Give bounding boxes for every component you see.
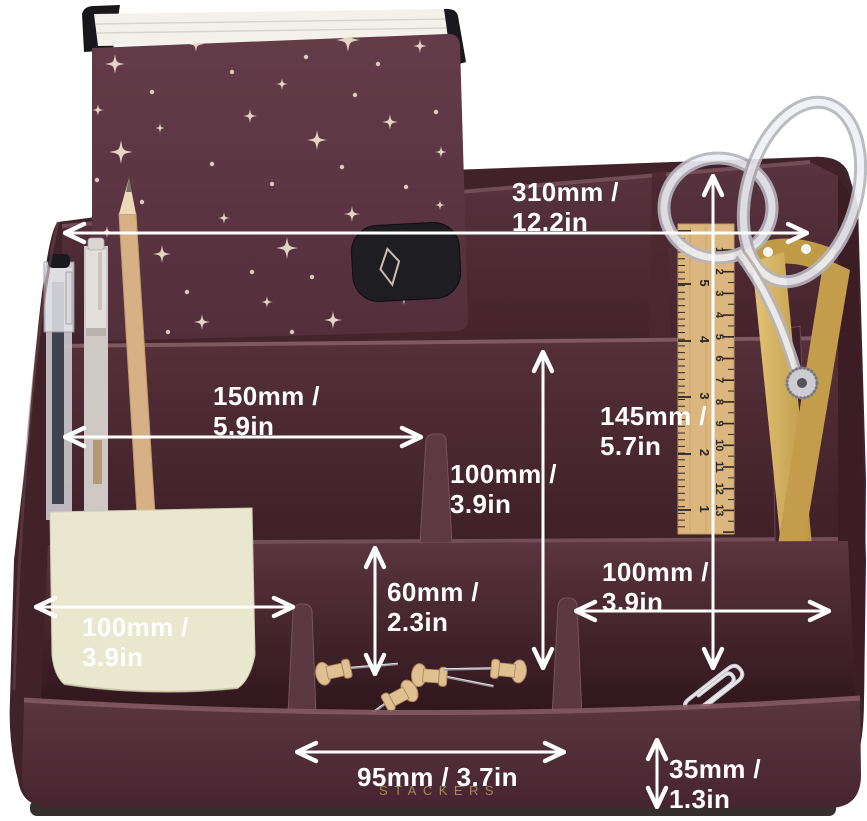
dot-decoration (140, 200, 144, 204)
ruler-cm-number: 7 (713, 377, 725, 383)
dot-decoration (210, 162, 214, 166)
dot-decoration (250, 270, 254, 274)
ruler-cm-number: 13 (713, 504, 725, 516)
dot-decoration (290, 330, 294, 334)
ruler-cm-number: 6 (713, 355, 725, 361)
dimension-label-left-compartment-width: 150mm / 5.9in (213, 381, 320, 441)
ruler-inch-number: 4 (697, 336, 712, 344)
ruler-cm-number: 12 (713, 483, 725, 495)
ruler-inch-number: 1 (697, 505, 712, 512)
dimension-label-base-height: 35mm / 1.3in (669, 754, 761, 814)
wooden-ruler: 5432112345678910111213 (678, 224, 734, 534)
dot-decoration (340, 165, 344, 169)
dot-decoration (270, 182, 274, 186)
dot-decoration (95, 178, 99, 182)
product-photo: 5432112345678910111213 (0, 0, 867, 821)
ruler-cm-number: 10 (713, 439, 725, 451)
ruler-inch-number: 5 (697, 279, 712, 286)
front-divider-left (288, 604, 316, 714)
ruler-inch-number: 3 (697, 392, 712, 399)
dot-decoration (166, 330, 170, 334)
ruler-cm-number: 9 (713, 421, 725, 427)
scissors-hole (763, 247, 773, 257)
dimension-label-overall-width: 310mm / 12.2in (512, 177, 619, 237)
ruler-cm-number: 2 (713, 269, 725, 275)
ruler-cm-number: 11 (713, 461, 725, 473)
dot-decoration (353, 93, 357, 97)
white-pen (84, 238, 108, 530)
dot-decoration (434, 110, 438, 114)
gel-pen (44, 254, 74, 520)
brand-logo-text: STACKERS (379, 783, 500, 798)
pen-clip (66, 272, 72, 324)
dot-decoration (185, 290, 189, 294)
pin-base (490, 659, 500, 679)
dot-decoration (376, 62, 380, 66)
scissors-pivot-center (797, 378, 807, 388)
dot-decoration (310, 275, 314, 279)
dimension-label-middle-depth: 100mm / 3.9in (450, 459, 557, 519)
scissors-hole (801, 244, 811, 254)
dimension-label-sticky-width: 100mm / 3.9in (82, 612, 189, 672)
ruler-cm-number: 5 (713, 334, 725, 340)
desk-organizer-illustration: 5432112345678910111213 (0, 0, 867, 821)
dot-decoration (304, 55, 308, 59)
ruler-cm-number: 8 (713, 399, 725, 405)
dimension-label-right-width: 100mm / 3.9in (602, 557, 709, 617)
dimension-label-divider-height: 60mm / 2.3in (387, 577, 479, 637)
dot-decoration (230, 70, 234, 74)
dot-decoration (150, 90, 154, 94)
dot-decoration (404, 185, 408, 189)
ruler-cm-number: 4 (713, 312, 725, 319)
pen-clip (98, 252, 102, 310)
ruler-cm-number: 3 (713, 290, 725, 296)
dimension-label-overall-height: 145mm / 5.7in (600, 401, 707, 461)
